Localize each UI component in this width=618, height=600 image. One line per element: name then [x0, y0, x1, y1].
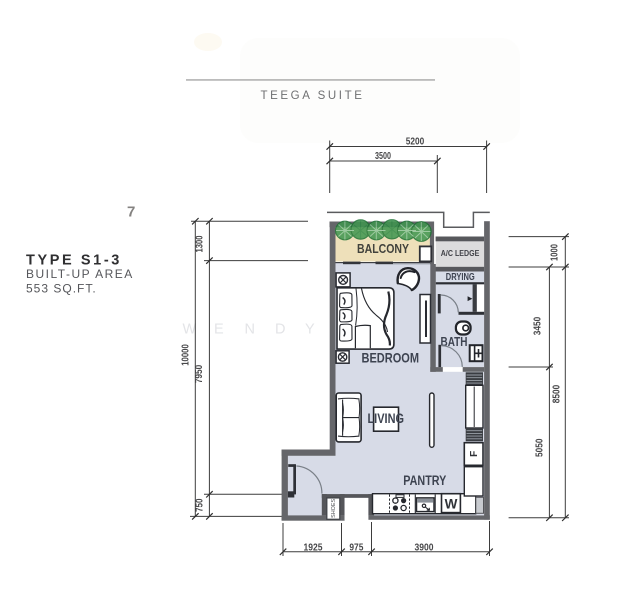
- svg-text:Y: Y: [305, 322, 315, 338]
- svg-text:3500: 3500: [375, 151, 391, 162]
- svg-text:N: N: [245, 322, 255, 338]
- svg-text:8500: 8500: [552, 384, 563, 403]
- svg-text:10000: 10000: [181, 344, 192, 366]
- svg-text:3900: 3900: [415, 543, 434, 554]
- svg-text:BEDROOM: BEDROOM: [362, 349, 420, 365]
- svg-text:DRYING: DRYING: [446, 272, 475, 283]
- svg-text:LIVING: LIVING: [368, 411, 405, 426]
- svg-text:F: F: [469, 451, 480, 457]
- svg-text:1000: 1000: [549, 244, 560, 261]
- svg-text:BATH: BATH: [441, 335, 468, 349]
- svg-text:BALCONY: BALCONY: [357, 242, 410, 256]
- svg-text:PANTRY: PANTRY: [403, 473, 446, 488]
- svg-text:BUILT-UP AREA: BUILT-UP AREA: [26, 267, 134, 281]
- svg-text:553 SQ.FT.: 553 SQ.FT.: [26, 282, 97, 296]
- svg-text:7950: 7950: [194, 364, 205, 383]
- svg-text:975: 975: [349, 543, 363, 554]
- svg-text:W: W: [183, 322, 197, 338]
- svg-text:W: W: [445, 497, 458, 512]
- svg-text:TYPE S1-3: TYPE S1-3: [26, 252, 122, 268]
- svg-text:5200: 5200: [406, 137, 425, 148]
- svg-text:A/C LEDGE: A/C LEDGE: [441, 248, 480, 258]
- svg-text:1925: 1925: [304, 543, 323, 554]
- svg-text:1300: 1300: [195, 235, 206, 252]
- svg-text:7: 7: [127, 204, 135, 221]
- svg-text:5050: 5050: [535, 438, 546, 457]
- svg-text:750: 750: [194, 498, 205, 512]
- svg-text:E: E: [214, 322, 224, 338]
- svg-text:TEEGA SUITE: TEEGA SUITE: [260, 90, 364, 102]
- svg-text:3450: 3450: [533, 316, 544, 335]
- svg-text:SHOES: SHOES: [331, 499, 337, 518]
- svg-text:D: D: [275, 322, 285, 338]
